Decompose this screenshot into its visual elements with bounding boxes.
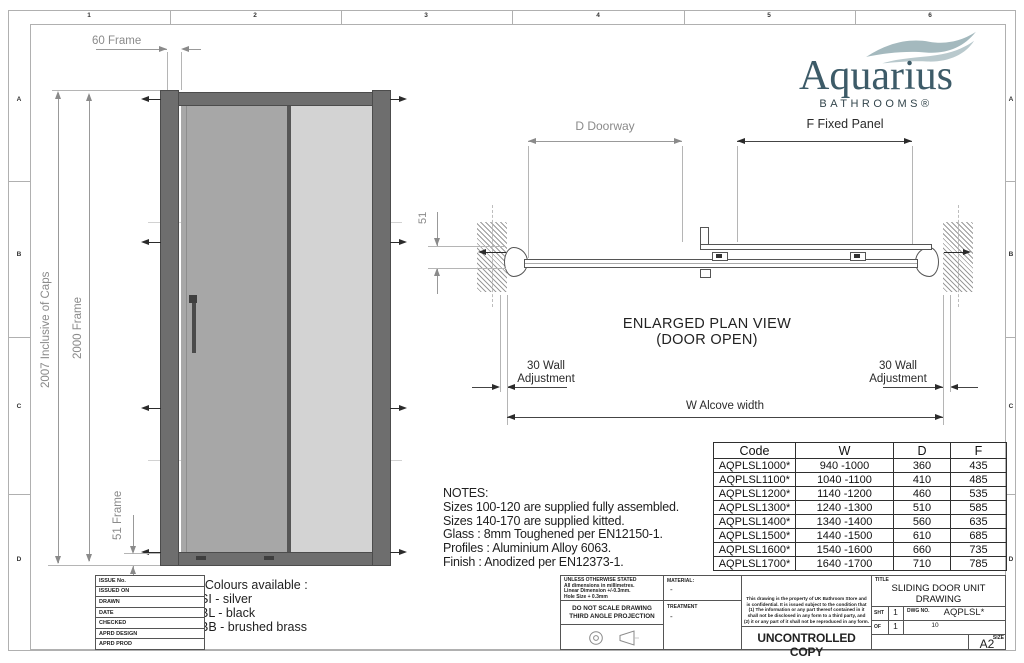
door-roller	[196, 556, 206, 560]
table-row: AQPLSL1400*1340 -1400560635	[714, 515, 1007, 529]
dim-arrow	[904, 138, 912, 144]
wall-fix-arrow	[478, 249, 486, 255]
zone-divider	[8, 337, 30, 338]
witness-line	[682, 146, 683, 242]
cell-f: 535	[951, 487, 1007, 501]
issue-row-label: DATE	[96, 608, 204, 619]
plan-caption-line2: (DOOR OPEN)	[607, 332, 807, 348]
table-row: AQPLSL1600*1540 -1600660735	[714, 543, 1007, 557]
uncontrolled-copy-text: UNCONTROLLED COPY	[742, 631, 871, 659]
issue-row-label: ISSUE No.	[96, 576, 204, 587]
dim-2000-label: 2000 Frame	[72, 245, 86, 410]
col-header-f: F	[951, 443, 1007, 459]
scale-warning-box: DO NOT SCALE DRAWING THIRD ANGLE PROJECT…	[560, 600, 664, 625]
wall-adjustment-right-label1: 30 Wall	[848, 360, 948, 372]
drawing-sheet: 1 2 3 4 5 6 A B C D A B C D Aquarius BAT…	[0, 0, 1024, 663]
witness-line	[500, 295, 501, 392]
door-handle	[189, 295, 197, 303]
zone-row-label: A	[11, 96, 27, 103]
legal-line: shall not be disclosed in any form to a …	[742, 613, 871, 619]
of-label: OF	[874, 624, 881, 630]
legal-line: (2) it or any part of it shall not be re…	[742, 619, 871, 625]
dim-arrow	[492, 384, 500, 390]
guide-stub	[700, 269, 711, 278]
door-left-jamb	[160, 90, 179, 566]
issue-table: ISSUE No. ISSUED ON DRAWN DATE CHECKED A…	[95, 575, 205, 650]
zone-col-label: 6	[920, 12, 940, 19]
zone-row-label: B	[11, 251, 27, 258]
witness-line	[167, 52, 168, 90]
treatment-value: -	[670, 612, 673, 621]
door-right-jamb	[372, 90, 391, 566]
cell-f: 485	[951, 473, 1007, 487]
dim-arrow	[737, 138, 745, 144]
cell-d: 610	[894, 529, 951, 543]
cell-f: 685	[951, 529, 1007, 543]
dim-doorway-label: D Doorway	[545, 119, 665, 133]
cell-w: 1640 -1700	[796, 557, 894, 571]
dim-arrow	[130, 566, 136, 574]
cell-w: 1440 -1500	[796, 529, 894, 543]
issue-row-label: ISSUED ON	[96, 587, 204, 598]
cell-f: 735	[951, 543, 1007, 557]
dim-arrow	[674, 138, 682, 144]
dim-51-frame-label: 51 Frame	[112, 472, 126, 558]
dim-arrow	[55, 91, 61, 99]
roller-dot	[854, 254, 860, 258]
cell-f: 785	[951, 557, 1007, 571]
logo-subtitle: BATHROOMS®	[770, 98, 982, 110]
cell-d: 510	[894, 501, 951, 515]
cell-d: 560	[894, 515, 951, 529]
zone-row-label: B	[1006, 251, 1016, 258]
witness-line	[943, 295, 944, 425]
zone-divider	[684, 10, 685, 24]
cell-d: 460	[894, 487, 951, 501]
col-header-w: W	[796, 443, 894, 459]
table-row: AQPLSL1200*1140 -1200460535	[714, 487, 1007, 501]
cell-code: AQPLSL1600*	[714, 543, 796, 557]
dim-arrow	[181, 46, 189, 52]
zone-row-label: C	[11, 403, 27, 410]
dim-line	[472, 387, 492, 388]
cell-w: 1340 -1400	[796, 515, 894, 529]
note-line: Profiles : Aluminium Alloy 6063.	[443, 542, 679, 556]
zone-row-label: C	[1006, 403, 1016, 410]
plan-caption-line1: ENLARGED PLAN VIEW	[607, 316, 807, 332]
zone-divider	[8, 494, 30, 495]
zone-row-label: D	[11, 556, 27, 563]
drawing-title-line2: DRAWING	[871, 594, 1006, 605]
note-line: Finish : Anodized per EN12373-1.	[443, 556, 679, 570]
dim-line	[528, 141, 682, 142]
zone-divider	[170, 10, 171, 24]
zone-divider	[1006, 494, 1016, 495]
dwg-no-value: AQPLSL*	[925, 607, 1003, 618]
fixing-arrow-tail	[390, 242, 402, 243]
door-handle-plan	[700, 227, 709, 245]
legal-box: This drawing is the property of UK Bathr…	[741, 575, 872, 627]
col-header-d: D	[894, 443, 951, 459]
witness-line	[181, 52, 182, 90]
cell-d: 710	[894, 557, 951, 571]
zone-divider	[341, 10, 342, 24]
col-header-code: Code	[714, 443, 796, 459]
fixing-arrow-tail	[148, 408, 161, 409]
table-row: AQPLSL1100*1040 -1100410485	[714, 473, 1007, 487]
cell-d: 660	[894, 543, 951, 557]
fixed-panel-glass	[291, 106, 372, 552]
dim-line	[958, 387, 978, 388]
treatment-label: TREATMENT	[667, 604, 697, 610]
dim-arrow	[434, 268, 440, 276]
witness-line	[912, 146, 913, 244]
zone-col-label: 2	[245, 12, 265, 19]
issue-row-label: APRD DESIGN	[96, 629, 204, 640]
notes-title: NOTES:	[443, 487, 679, 501]
note-line: Glass : 8mm Toughened per EN12150-1.	[443, 528, 679, 542]
door-handle-bar	[192, 303, 196, 353]
material-value: -	[670, 585, 673, 594]
witness-line	[737, 146, 738, 242]
witness-line	[52, 90, 160, 91]
wall-profile-right	[915, 247, 939, 277]
table-row: AQPLSL1700*1640 -1700710785	[714, 557, 1007, 571]
third-angle-circle-icon	[587, 630, 605, 646]
sht-label: SHT	[874, 610, 884, 616]
dim-arrow	[935, 414, 943, 420]
dwg-issue-value: 10	[915, 622, 955, 629]
cell-code: AQPLSL1500*	[714, 529, 796, 543]
material-label: MATERIAL:	[667, 578, 694, 584]
fixing-arrow-tail	[390, 99, 402, 100]
fixing-arrow-tail	[390, 408, 402, 409]
dim-line	[507, 417, 943, 418]
treatment-box: TREATMENT -	[663, 600, 742, 650]
dim-arrow	[130, 546, 136, 554]
dim-fixed-panel-label: F Fixed Panel	[785, 117, 905, 131]
uncontrolled-copy-box: UNCONTROLLED COPY	[741, 626, 872, 650]
logo-name: Aquarius	[770, 52, 982, 100]
zone-divider	[8, 181, 30, 182]
cell-w: 1540 -1600	[796, 543, 894, 557]
wall-fix-arrow	[963, 249, 971, 255]
witness-line	[528, 146, 529, 258]
size-table: Code W D F AQPLSL1000*940 -1000360435 AQ…	[713, 442, 1007, 571]
wall-centerline	[958, 205, 959, 307]
cell-w: 1040 -1100	[796, 473, 894, 487]
third-angle-cone-icon	[617, 630, 641, 646]
witness-line	[950, 295, 951, 392]
wall-fix-arrow-tail	[944, 252, 964, 253]
zone-row-label: A	[1006, 96, 1016, 103]
cell-f: 635	[951, 515, 1007, 529]
cell-code: AQPLSL1300*	[714, 501, 796, 515]
dim-arrow	[86, 554, 92, 562]
wall-fix-arrow-tail	[486, 252, 506, 253]
table-row: AQPLSL1500*1440 -1500610685	[714, 529, 1007, 543]
dim-line	[737, 141, 912, 142]
issue-row-label: APRD PROD	[96, 639, 204, 649]
dim-arrow	[935, 384, 943, 390]
cell-code: AQPLSL1400*	[714, 515, 796, 529]
zone-col-label: 3	[416, 12, 436, 19]
colour-option: BB - brushed brass	[200, 620, 308, 634]
dim-line	[89, 95, 90, 561]
witness-line	[48, 565, 160, 566]
zone-row-label: D	[1006, 556, 1016, 563]
issue-row-label: DRAWN	[96, 597, 204, 608]
dim-arrow	[528, 138, 536, 144]
material-box: MATERIAL: -	[663, 575, 742, 601]
dim-line	[96, 49, 167, 50]
colour-option: SI - silver	[200, 592, 308, 606]
projection-text: THIRD ANGLE PROJECTION	[561, 613, 663, 621]
cell-code: AQPLSL1200*	[714, 487, 796, 501]
cell-w: 1240 -1300	[796, 501, 894, 515]
dim-arrow	[434, 238, 440, 246]
zone-divider	[512, 10, 513, 24]
door-top-rail	[178, 92, 373, 106]
table-row: AQPLSL1300*1240 -1300510585	[714, 501, 1007, 515]
dim-arrow	[507, 384, 515, 390]
zone-col-label: 4	[588, 12, 608, 19]
witness-line	[428, 268, 506, 269]
cell-code: AQPLSL1100*	[714, 473, 796, 487]
dim-arrow	[507, 414, 515, 420]
dim-alcove-label: W Alcove width	[625, 400, 825, 412]
dim-line	[883, 387, 943, 388]
dim-line	[189, 49, 201, 50]
note-line: Sizes 140-170 are supplied kitted.	[443, 515, 679, 529]
cell-code: AQPLSL1000*	[714, 459, 796, 473]
dim-arrow	[159, 46, 167, 52]
zone-divider	[855, 10, 856, 24]
colours-block: *Colours available : SI - silver BL - bl…	[200, 578, 308, 634]
fixing-arrow-tail	[148, 242, 161, 243]
table-row: AQPLSL1000*940 -1000360435	[714, 459, 1007, 473]
colour-option: BL - black	[200, 606, 308, 620]
wall-adjustment-right-label2: Adjustment	[848, 373, 948, 385]
door-bottom-rail	[178, 552, 373, 566]
sht-value: 1	[888, 607, 903, 617]
door-stile-line	[186, 106, 187, 552]
zone-col-label: 1	[79, 12, 99, 19]
door-roller	[264, 556, 274, 560]
zone-divider	[1006, 181, 1016, 182]
dim-line	[58, 93, 59, 563]
cell-f: 435	[951, 459, 1007, 473]
logo: Aquarius BATHROOMS®	[770, 28, 982, 112]
notes-block: NOTES: Sizes 100-120 are supplied fully …	[443, 487, 679, 570]
dim-arrow	[950, 384, 958, 390]
dim-arrow	[86, 93, 92, 101]
dim-arrow	[55, 556, 61, 564]
zone-divider	[1006, 337, 1016, 338]
roller-dot	[716, 254, 722, 258]
size-value: A2	[968, 637, 1006, 651]
projection-symbols-box	[560, 624, 664, 650]
wall-centerline	[492, 205, 493, 307]
scale-warning-text: DO NOT SCALE DRAWING	[561, 605, 663, 613]
open-door-panel-plan	[700, 244, 932, 250]
fixing-arrow-tail	[390, 552, 402, 553]
sliding-panel-glass	[181, 106, 287, 552]
cell-w: 1140 -1200	[796, 487, 894, 501]
witness-line	[507, 295, 508, 425]
legal-line: This drawing is the property of UK Bathr…	[742, 596, 871, 602]
note-line: Sizes 100-120 are supplied fully assembl…	[443, 501, 679, 515]
cell-d: 410	[894, 473, 951, 487]
cell-w: 940 -1000	[796, 459, 894, 473]
dim-60-frame-label: 60 Frame	[92, 35, 141, 47]
wall-adjustment-left-label1: 30 Wall	[496, 360, 596, 372]
fixed-panel-plan-line	[525, 263, 917, 264]
size-table-header-row: Code W D F	[714, 443, 1007, 459]
cell-f: 585	[951, 501, 1007, 515]
drawing-title-line1: SLIDING DOOR UNIT	[871, 583, 1006, 594]
witness-line	[428, 246, 506, 247]
fixing-arrow-tail	[148, 99, 161, 100]
dim-line	[507, 387, 567, 388]
zone-col-label: 5	[759, 12, 779, 19]
issue-row-label: CHECKED	[96, 618, 204, 629]
tolerance-box: UNLESS OTHERWISE STATED All dimensions i…	[560, 575, 664, 601]
of-value: 1	[888, 621, 903, 631]
cell-d: 360	[894, 459, 951, 473]
colours-title: *Colours available :	[200, 578, 308, 592]
dim-depth-label: 51	[417, 198, 430, 238]
cell-code: AQPLSL1700*	[714, 557, 796, 571]
dim-2007-label: 2007 Inclusive of Caps	[40, 170, 54, 490]
